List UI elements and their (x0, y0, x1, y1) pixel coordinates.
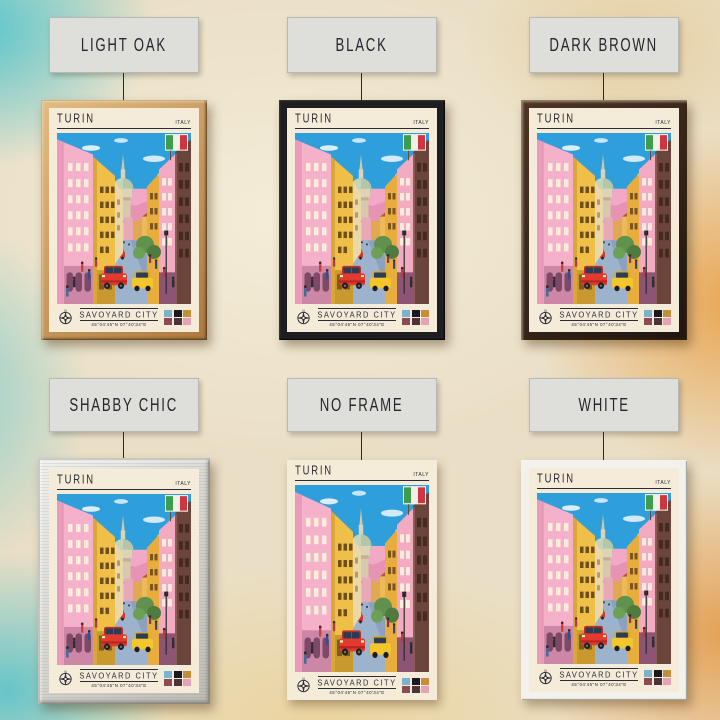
palette-swatch (402, 310, 410, 317)
palette-swatch (183, 679, 191, 686)
hang-line (123, 432, 124, 460)
poster-footer: N SAVOYARD CITY 45°04'45"N 07°40'34"E (57, 308, 191, 327)
palette-swatch (174, 671, 182, 678)
palette-swatch (164, 310, 172, 317)
option-label-text: WHITE (578, 394, 629, 415)
poster-paper: TURIN ITALY (287, 460, 437, 700)
palette-swatch (412, 318, 420, 325)
poster-country-label: ITALY (175, 121, 191, 126)
palette-swatch (663, 318, 671, 325)
poster-subtitle-block: SAVOYARD CITY 45°04'45"N 07°40'34"E (558, 668, 640, 687)
palette-swatch (164, 318, 172, 325)
poster-art (295, 485, 429, 673)
poster-coordinates: 45°04'45"N 07°40'34"E (558, 322, 640, 327)
palette-swatch (644, 670, 652, 677)
framed-poster-white: TURIN ITALY (521, 460, 687, 700)
palette-swatch (174, 679, 182, 686)
poster-footer: N SAVOYARD CITY 45°04'45"N 07°40'34"E (57, 669, 191, 688)
turin-street-illustration (295, 485, 429, 673)
poster-title: TURIN (295, 113, 333, 126)
compass-icon: N (295, 309, 312, 326)
poster-art (295, 133, 429, 305)
poster-title: TURIN (295, 465, 333, 478)
palette-swatch (183, 318, 191, 325)
poster-title: TURIN (57, 113, 95, 126)
palette-swatch (412, 310, 420, 317)
option-label-text: LIGHT OAK (81, 34, 167, 55)
palette-swatch (174, 318, 182, 325)
hang-line (361, 73, 362, 100)
poster-paper: TURIN ITALY (529, 108, 679, 332)
option-label-black: BLACK (287, 17, 437, 73)
poster-coordinates: 45°04'45"N 07°40'34"E (78, 683, 160, 688)
option-label-no-frame: NO FRAME (287, 378, 437, 432)
poster-footer: N SAVOYARD CITY 45°04'45"N 07°40'34"E (295, 308, 429, 327)
compass-icon: N (57, 670, 74, 687)
poster-coordinates: 45°04'45"N 07°40'34"E (316, 690, 398, 695)
palette-swatch (654, 678, 662, 685)
frame-options-board: LIGHT OAK BLACK DARK BROWN TURIN ITALY (0, 0, 720, 720)
poster-subtitle-block: SAVOYARD CITY 45°04'45"N 07°40'34"E (316, 676, 398, 695)
palette-swatch (644, 318, 652, 325)
poster-country-label: ITALY (655, 481, 671, 486)
compass-icon: N (295, 677, 312, 694)
poster-subtitle-block: SAVOYARD CITY 45°04'45"N 07°40'34"E (78, 669, 160, 688)
poster-art (537, 493, 671, 665)
option-label-text: DARK BROWN (550, 34, 659, 55)
poster-header: TURIN ITALY (295, 467, 429, 481)
palette-swatch (421, 686, 429, 693)
option-label-light-oak: LIGHT OAK (49, 17, 199, 73)
framed-poster-no-frame: TURIN ITALY (287, 460, 437, 700)
poster-title: TURIN (57, 474, 95, 487)
color-palette-swatches (644, 670, 671, 686)
poster-art (57, 494, 191, 666)
palette-swatch (183, 671, 191, 678)
compass-icon: N (537, 309, 554, 326)
poster-art (57, 133, 191, 305)
hang-line (123, 73, 124, 100)
palette-swatch (412, 678, 420, 685)
palette-swatch (663, 310, 671, 317)
compass-icon: N (537, 669, 554, 686)
poster-subtitle: SAVOYARD CITY (316, 676, 398, 689)
poster-title: TURIN (537, 113, 575, 126)
poster-subtitle: SAVOYARD CITY (316, 308, 398, 321)
color-palette-swatches (402, 678, 429, 694)
color-palette-swatches (164, 671, 191, 687)
poster-paper: TURIN ITALY (49, 108, 199, 332)
compass-icon: N (57, 309, 74, 326)
poster-subtitle: SAVOYARD CITY (78, 308, 160, 321)
turin-street-illustration (537, 493, 671, 665)
option-label-dark-brown: DARK BROWN (529, 17, 679, 73)
poster-header: TURIN ITALY (57, 476, 191, 490)
palette-swatch (412, 686, 420, 693)
hang-line (361, 432, 362, 460)
poster-paper: TURIN ITALY (287, 108, 437, 332)
poster-coordinates: 45°04'45"N 07°40'34"E (316, 322, 398, 327)
poster-footer: N SAVOYARD CITY 45°04'45"N 07°40'34"E (295, 676, 429, 695)
palette-swatch (644, 310, 652, 317)
palette-swatch (402, 686, 410, 693)
palette-swatch (174, 310, 182, 317)
poster-art (537, 133, 671, 305)
poster-footer: N SAVOYARD CITY 45°04'45"N 07°40'34"E (537, 668, 671, 687)
poster-country-label: ITALY (655, 121, 671, 126)
poster-header: TURIN ITALY (537, 115, 671, 129)
palette-swatch (402, 318, 410, 325)
hang-line (603, 73, 604, 100)
poster-header: TURIN ITALY (295, 115, 429, 129)
poster-subtitle-block: SAVOYARD CITY 45°04'45"N 07°40'34"E (316, 308, 398, 327)
poster-title: TURIN (537, 473, 575, 486)
palette-swatch (421, 310, 429, 317)
hang-line (603, 432, 604, 460)
option-label-white: WHITE (529, 378, 679, 432)
palette-swatch (421, 678, 429, 685)
color-palette-swatches (402, 310, 429, 326)
palette-swatch (644, 678, 652, 685)
poster-header: TURIN ITALY (537, 475, 671, 489)
poster-subtitle: SAVOYARD CITY (558, 308, 640, 321)
poster-country-label: ITALY (175, 482, 191, 487)
poster-footer: N SAVOYARD CITY 45°04'45"N 07°40'34"E (537, 308, 671, 327)
poster-country-label: ITALY (413, 473, 429, 478)
palette-swatch (654, 318, 662, 325)
poster-header: TURIN ITALY (57, 115, 191, 129)
palette-swatch (183, 310, 191, 317)
turin-street-illustration (57, 494, 191, 666)
poster-country-label: ITALY (413, 121, 429, 126)
option-label-text: SHABBY CHIC (70, 394, 179, 415)
poster-subtitle: SAVOYARD CITY (558, 668, 640, 681)
palette-swatch (654, 670, 662, 677)
color-palette-swatches (644, 310, 671, 326)
palette-swatch (164, 679, 172, 686)
framed-poster-dark-brown: TURIN ITALY (521, 100, 687, 340)
framed-poster-light-oak: TURIN ITALY (41, 100, 207, 340)
poster-paper: TURIN ITALY (529, 468, 679, 692)
turin-street-illustration (537, 133, 671, 305)
palette-swatch (421, 318, 429, 325)
palette-swatch (663, 670, 671, 677)
turin-street-illustration (295, 133, 429, 305)
color-palette-swatches (164, 310, 191, 326)
poster-subtitle-block: SAVOYARD CITY 45°04'45"N 07°40'34"E (558, 308, 640, 327)
poster-paper: TURIN ITALY (49, 469, 199, 693)
poster-coordinates: 45°04'45"N 07°40'34"E (78, 322, 160, 327)
poster-coordinates: 45°04'45"N 07°40'34"E (558, 682, 640, 687)
option-label-text: BLACK (336, 34, 388, 55)
option-label-text: NO FRAME (320, 394, 404, 415)
palette-swatch (402, 678, 410, 685)
palette-swatch (663, 678, 671, 685)
poster-subtitle-block: SAVOYARD CITY 45°04'45"N 07°40'34"E (78, 308, 160, 327)
poster-subtitle: SAVOYARD CITY (78, 669, 160, 682)
framed-poster-shabby-chic: TURIN ITALY (38, 458, 210, 704)
palette-swatch (654, 310, 662, 317)
framed-poster-black: TURIN ITALY (279, 100, 445, 340)
option-label-shabby-chic: SHABBY CHIC (49, 378, 199, 432)
palette-swatch (164, 671, 172, 678)
turin-street-illustration (57, 133, 191, 305)
